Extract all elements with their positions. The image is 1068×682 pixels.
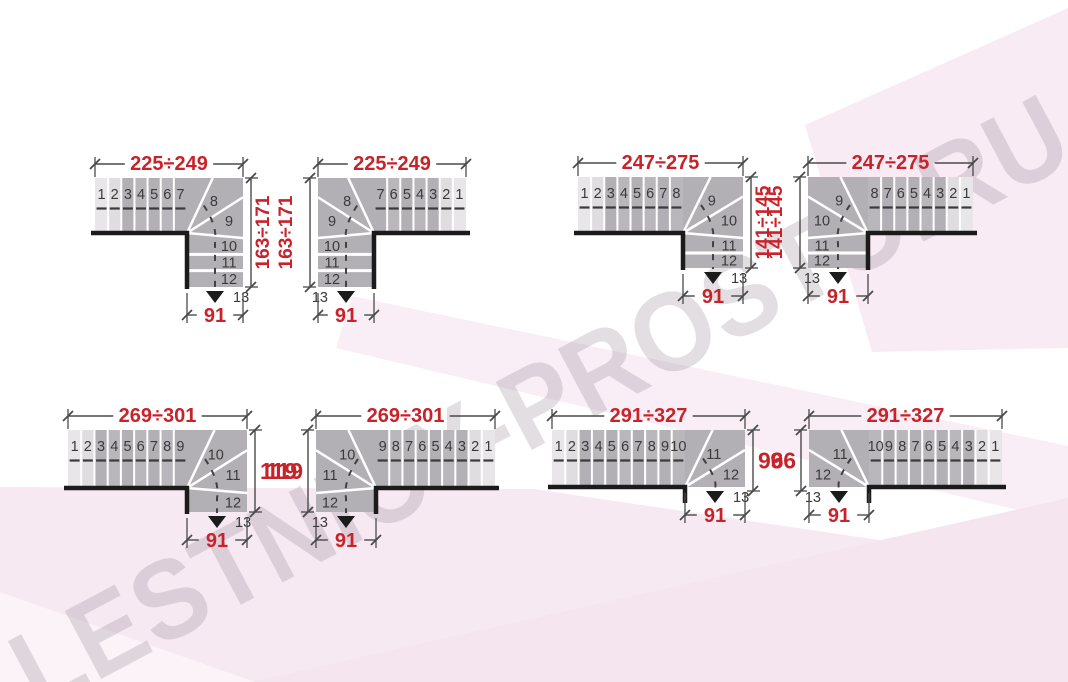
- step-number: 10: [339, 447, 355, 463]
- step-number: 5: [910, 186, 918, 202]
- step-number: 2: [471, 439, 479, 455]
- top-width-label: 291÷327: [867, 405, 945, 427]
- stair-diagram-7-corner-right: 13123456789101112291÷3279691: [547, 405, 784, 527]
- step-number: 5: [938, 439, 946, 455]
- step-number: 2: [84, 439, 92, 455]
- exit-step-number: 13: [733, 490, 749, 506]
- step-number: 7: [377, 187, 385, 203]
- stair-diagram-8-corner-left: 13123456789101112291÷3279691: [770, 405, 1007, 527]
- step-number: 7: [659, 186, 667, 202]
- exit-step-number: 13: [312, 515, 328, 531]
- exit-step-number: 13: [235, 515, 251, 531]
- step-number: 9: [885, 439, 893, 455]
- side-height-label: 163÷171: [276, 195, 297, 269]
- step-number: 9: [176, 439, 184, 455]
- step-number: 7: [405, 439, 413, 455]
- step-number: 11: [814, 239, 829, 255]
- step-number: 4: [137, 187, 145, 203]
- top-width-label: 247÷275: [622, 152, 700, 174]
- step-number: 3: [124, 187, 132, 203]
- step-number: 12: [815, 467, 831, 483]
- exit-step-number: 13: [805, 490, 821, 506]
- exit-width-label: 91: [828, 505, 850, 527]
- exit-arrow-icon: [830, 491, 848, 503]
- step-number: 6: [390, 187, 398, 203]
- exit-step-number: 13: [804, 271, 820, 287]
- exit-arrow-icon: [206, 291, 224, 303]
- step-number: 9: [661, 439, 669, 455]
- step-number: 3: [965, 439, 973, 455]
- step-number: 6: [621, 439, 629, 455]
- step-number: 6: [646, 186, 654, 202]
- top-width-label: 269÷301: [119, 405, 197, 427]
- step-number: 12: [225, 496, 241, 512]
- step-number: 10: [721, 214, 737, 230]
- step-number: 8: [648, 439, 656, 455]
- stair-corner-outline: [374, 233, 470, 289]
- step-number: 11: [833, 447, 848, 463]
- step-number: 4: [620, 186, 628, 202]
- step-number: 1: [455, 187, 463, 203]
- step-number: 12: [814, 254, 830, 270]
- exit-arrow-icon: [208, 516, 226, 528]
- step-number: 10: [208, 447, 224, 463]
- step-number: 8: [871, 186, 879, 202]
- step-number: 2: [594, 186, 602, 202]
- step-number: 1: [962, 186, 970, 202]
- side-height-label: 96: [770, 448, 796, 474]
- exit-step-number: 13: [312, 290, 328, 306]
- step-number: 4: [445, 439, 453, 455]
- step-number: 1: [555, 439, 563, 455]
- step-number: 4: [110, 439, 118, 455]
- step-number: 2: [442, 187, 450, 203]
- step-number: 8: [672, 186, 680, 202]
- exit-width-label: 91: [204, 305, 226, 327]
- top-width-label: 225÷249: [130, 153, 208, 175]
- step-number: 9: [708, 194, 716, 210]
- step-number: 10: [324, 239, 340, 255]
- step-number: 5: [403, 187, 411, 203]
- step-number: 10: [814, 214, 830, 230]
- step-number: 9: [328, 214, 336, 230]
- exit-arrow-icon: [829, 272, 847, 284]
- exit-width-label: 91: [704, 505, 726, 527]
- step-number: 12: [723, 467, 739, 483]
- step-number: 2: [978, 439, 986, 455]
- step-number: 5: [150, 187, 158, 203]
- step-number: 9: [379, 439, 387, 455]
- step-number: 1: [484, 439, 492, 455]
- stair-corner-outline: [64, 488, 187, 514]
- top-width-label: 247÷275: [852, 152, 930, 174]
- step-number: 12: [221, 272, 237, 288]
- step-number: 4: [951, 439, 959, 455]
- step-number: 6: [137, 439, 145, 455]
- step-number: 8: [210, 194, 218, 210]
- side-height-label: 163÷171: [253, 195, 274, 269]
- step-number: 11: [221, 256, 236, 272]
- step-number: 5: [123, 439, 131, 455]
- stair-corner-outline: [548, 487, 685, 503]
- exit-arrow-icon: [337, 516, 355, 528]
- step-number: 1: [98, 187, 106, 203]
- step-number: 3: [936, 186, 944, 202]
- top-width-label: 225÷249: [353, 153, 431, 175]
- stair-diagram-5-corner-right: 13123456789101112269÷30111991: [63, 405, 297, 552]
- exit-width-label: 91: [335, 305, 357, 327]
- step-number: 10: [670, 439, 686, 455]
- step-number: 10: [221, 239, 237, 255]
- top-width-label: 291÷327: [610, 405, 688, 427]
- step-number: 8: [392, 439, 400, 455]
- step-number: 3: [97, 439, 105, 455]
- step-number: 7: [150, 439, 158, 455]
- step-number: 12: [324, 272, 340, 288]
- exit-width-label: 91: [206, 530, 228, 552]
- stair-corner-outline: [91, 233, 187, 289]
- stair-plans-canvas: LESTNICY-PROSTO.RU 13123456789101112225÷…: [0, 0, 1068, 682]
- stair-diagrams-layer: 13123456789101112225÷249163÷171911312345…: [0, 0, 1068, 682]
- stair-corner-outline: [868, 233, 977, 270]
- stair-diagram-3-corner-right: 13123456789101112247÷275141÷14591: [573, 152, 774, 308]
- stair-corner-outline: [376, 488, 499, 514]
- step-number: 4: [416, 187, 424, 203]
- step-number: 11: [324, 256, 339, 272]
- step-number: 1: [991, 439, 999, 455]
- side-height-label: 119: [266, 458, 303, 484]
- step-number: 8: [343, 194, 351, 210]
- stair-diagram-1-corner-right: 13123456789101112225÷249163÷17191: [90, 153, 274, 327]
- step-number: 9: [835, 194, 843, 210]
- step-number: 1: [581, 186, 589, 202]
- step-number: 2: [949, 186, 957, 202]
- step-number: 7: [176, 187, 184, 203]
- step-number: 3: [429, 187, 437, 203]
- step-number: 11: [225, 468, 240, 484]
- stair-diagram-4-corner-left: 13123456789101112247÷275141÷14591: [766, 152, 978, 308]
- step-number: 3: [581, 439, 589, 455]
- step-number: 9: [225, 214, 233, 230]
- stair-corner-outline: [869, 487, 1006, 503]
- step-number: 10: [868, 439, 884, 455]
- side-height-label: 141÷145: [766, 185, 787, 259]
- step-number: 11: [322, 468, 337, 484]
- exit-width-label: 91: [827, 286, 849, 308]
- step-number: 12: [322, 496, 338, 512]
- step-number: 5: [608, 439, 616, 455]
- stair-diagram-2-corner-left: 13123456789101112225÷249163÷17191: [276, 153, 471, 327]
- exit-arrow-icon: [704, 272, 722, 284]
- step-number: 5: [431, 439, 439, 455]
- step-number: 4: [923, 186, 931, 202]
- step-number: 11: [706, 447, 721, 463]
- step-number: 8: [898, 439, 906, 455]
- stair-diagram-6-corner-left: 13123456789101112269÷30111991: [266, 405, 500, 552]
- step-number: 2: [568, 439, 576, 455]
- step-number: 12: [721, 254, 737, 270]
- exit-step-number: 13: [731, 271, 747, 287]
- step-number: 7: [912, 439, 920, 455]
- step-number: 1: [71, 439, 79, 455]
- top-width-label: 269÷301: [367, 405, 445, 427]
- step-number: 6: [897, 186, 905, 202]
- exit-width-label: 91: [702, 286, 724, 308]
- exit-arrow-icon: [706, 491, 724, 503]
- step-number: 5: [633, 186, 641, 202]
- step-number: 8: [163, 439, 171, 455]
- step-number: 11: [721, 239, 736, 255]
- step-number: 4: [595, 439, 603, 455]
- step-number: 6: [418, 439, 426, 455]
- step-number: 2: [111, 187, 119, 203]
- step-number: 6: [163, 187, 171, 203]
- step-number: 7: [884, 186, 892, 202]
- step-number: 3: [607, 186, 615, 202]
- step-number: 7: [634, 439, 642, 455]
- exit-arrow-icon: [337, 291, 355, 303]
- exit-width-label: 91: [335, 530, 357, 552]
- stair-corner-outline: [574, 233, 683, 270]
- step-number: 6: [925, 439, 933, 455]
- step-number: 3: [458, 439, 466, 455]
